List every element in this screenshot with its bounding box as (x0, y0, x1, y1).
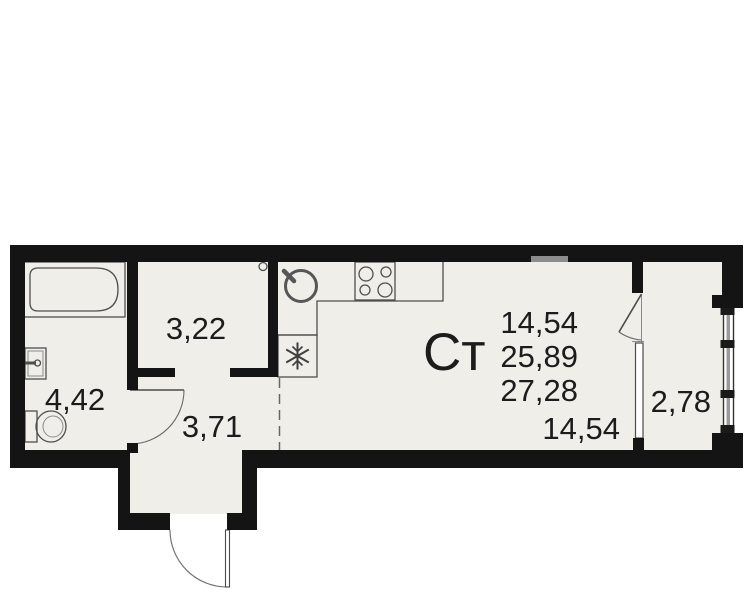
balcony-area-label: 2,78 (651, 384, 711, 419)
living-area-label: 14,54 (500, 305, 578, 340)
closet-area-label: 3,22 (166, 311, 226, 346)
vestibule-floor (130, 450, 242, 514)
hallway-area-label: 3,71 (182, 409, 242, 444)
wall-niche (531, 256, 568, 262)
unit-type-label: Ст (423, 323, 486, 382)
floor-plan-svg: 3,22 4,42 3,71 Ст 14,54 25,89 27,28 14,5… (0, 0, 749, 600)
floor-plan: 3,22 4,42 3,71 Ст 14,54 25,89 27,28 14,5… (0, 0, 749, 600)
main-room-area-label: 14,54 (542, 411, 620, 446)
total-with-balcony-area-label: 27,28 (500, 373, 578, 408)
bathroom-area-label: 4,42 (45, 382, 105, 417)
total-area-label: 25,89 (500, 339, 578, 374)
